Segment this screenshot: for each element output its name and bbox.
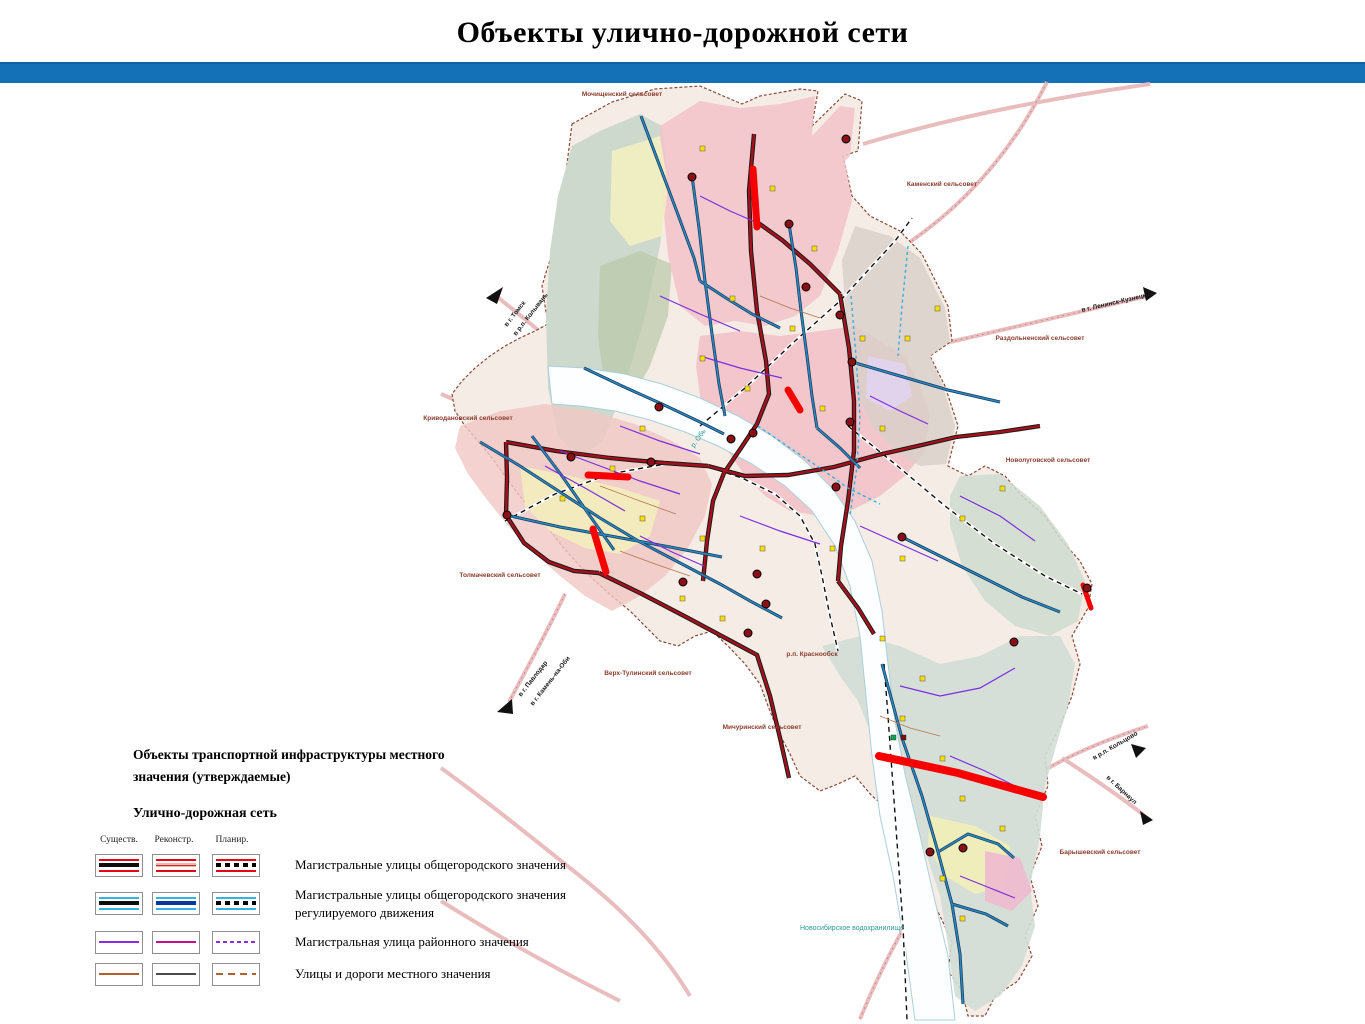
slide: Объекты улично-дорожной сети [0,0,1365,1024]
swatch-local-reconstruction [152,963,200,986]
settlement-label: Мичуринский сельсовет [723,723,802,731]
legend-column-headers: Существ. Реконстр. Планир. [95,835,655,845]
direction-label-leninsk: в г. Ленинск-Кузнецкий [1081,289,1155,313]
page-title: Объекты улично-дорожной сети [0,16,1365,50]
swatch-regulated-existing [95,892,143,915]
legend-label-district: Магистральная улица районного значения [295,933,607,951]
swatch-regulated-reconstruction [152,892,200,915]
legend-column-existing: Существ. [95,835,143,845]
swatch-citywide-reconstruction [152,854,200,877]
swatch-citywide-planned [212,854,260,877]
place-label-krasnoobsk: р.п. Краснообск [786,650,838,658]
legend-label-citywide: Магистральные улицы общегородского значе… [295,856,607,874]
legend-column-reconstruction: Реконстр. [150,835,198,845]
swatch-district-existing [95,931,143,954]
settlement-label: Верх-Тулинский сельсовет [604,669,692,677]
settlement-label: Раздольненский сельсовет [996,334,1085,342]
settlement-label: Криводановский сельсовет [423,414,512,422]
legend-row-local: Улицы и дороги местного значения [95,963,655,986]
legend-row-citywide: Магистральные улицы общегородского значе… [95,854,655,877]
reservoir-label: Новосибирское водохранилище [800,924,904,932]
legend: Объекты транспортной инфраструктуры мест… [95,744,655,986]
settlement-label: Новолуговской сельсовет [1006,456,1091,464]
settlement-label: Мочищенский сельсовет [582,90,662,98]
swatch-local-existing [95,963,143,986]
settlement-label: Каменский сельсовет [907,180,977,188]
legend-block-title: Объекты транспортной инфраструктуры мест… [133,744,493,789]
legend-column-planned: Планир. [208,835,256,845]
legend-label-regulated: Магистральные улицы общегородского значе… [295,886,607,922]
swatch-citywide-existing [95,854,143,877]
legend-row-regulated: Магистральные улицы общегородского значе… [95,886,655,922]
legend-section-title: Улично-дорожная сеть [133,806,655,822]
settlement-label: Толмачевский сельсовет [459,571,540,579]
swatch-local-planned [212,963,260,986]
swatch-district-planned [212,931,260,954]
legend-row-district: Магистральная улица районного значения [95,931,655,954]
swatch-district-reconstruction [152,931,200,954]
header-divider-bar [0,62,1365,83]
legend-label-local: Улицы и дороги местного значения [295,965,607,983]
swatch-regulated-planned [212,892,260,915]
settlement-label: Барышевский сельсовет [1060,848,1141,856]
